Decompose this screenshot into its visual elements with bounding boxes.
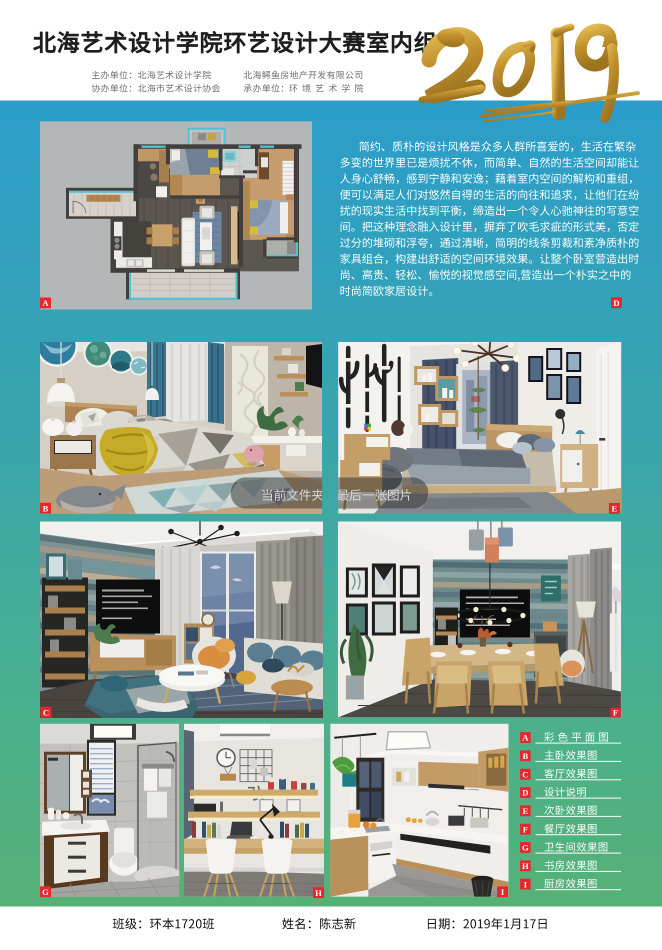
svg-text:C: C <box>522 769 528 779</box>
svg-text:F: F <box>523 824 528 834</box>
svg-text:E: E <box>523 806 529 816</box>
svg-text:G: G <box>42 887 49 897</box>
svg-text:F: F <box>613 707 618 717</box>
svg-text:A: A <box>522 733 529 743</box>
svg-text:A: A <box>42 298 49 308</box>
svg-text:E: E <box>612 504 618 514</box>
svg-text:C: C <box>43 707 49 717</box>
svg-text:B: B <box>523 751 529 761</box>
svg-text:G: G <box>522 843 529 853</box>
svg-text:H: H <box>315 888 322 898</box>
svg-text:B: B <box>43 503 49 513</box>
svg-text:D: D <box>522 788 528 798</box>
svg-text:D: D <box>613 298 619 308</box>
svg-text:H: H <box>522 861 529 871</box>
